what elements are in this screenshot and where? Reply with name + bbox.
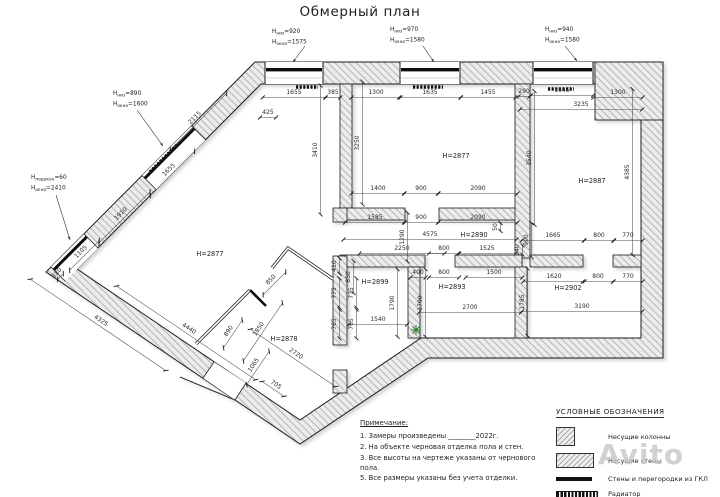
leader-line bbox=[137, 110, 163, 146]
window-label-text: Hокна=1580 bbox=[545, 38, 580, 45]
dimension: 1620 bbox=[521, 273, 586, 284]
note-item: 1. Замеры произведены ________2022г. bbox=[360, 432, 540, 442]
dimension: 770 bbox=[611, 273, 644, 284]
dim-label: 1300 bbox=[610, 89, 625, 96]
note-item: 2. На объекте черновая отделка пола и ст… bbox=[360, 443, 540, 453]
dim-label: 1585 bbox=[367, 214, 382, 221]
dim-label: 1455 bbox=[480, 89, 495, 96]
room-height-label: H=2890 bbox=[460, 231, 487, 239]
room-height-label: H=2899 bbox=[361, 278, 388, 286]
column-swatch-icon bbox=[556, 427, 575, 446]
dimension: 2720 bbox=[248, 321, 342, 389]
dimension: 1065 bbox=[238, 345, 271, 388]
dimension: 1850 bbox=[235, 297, 285, 364]
window-label-text: Hниз=920 bbox=[272, 29, 300, 36]
dim-label: 1645 bbox=[554, 87, 569, 94]
dim-label: 770 bbox=[622, 232, 634, 239]
dimension: 1645 bbox=[529, 87, 595, 98]
avito-watermark: Avito bbox=[598, 438, 684, 471]
leader-line bbox=[293, 46, 305, 62]
legend-heading: УСЛОВНЫЕ ОБОЗНАЧЕНИЯ bbox=[556, 407, 664, 418]
dimension: 1525 bbox=[456, 245, 518, 256]
gkl-swatch-icon bbox=[556, 477, 592, 481]
dimension: 770 bbox=[611, 232, 644, 243]
dim-label: 3250 bbox=[354, 135, 361, 150]
room-height-label: H=2902 bbox=[554, 284, 581, 292]
dimension: 1400 bbox=[350, 185, 407, 196]
dim-label: 410 bbox=[331, 260, 338, 272]
window-label: Hниз=890Hокна=1600 bbox=[113, 91, 163, 146]
dim-label: 800 bbox=[593, 232, 605, 239]
windows-top bbox=[265, 62, 593, 84]
dim-label: 2720 bbox=[288, 347, 305, 361]
dimension: 4575 bbox=[342, 231, 519, 242]
dim-label: 1665 bbox=[545, 232, 560, 239]
dim-label: 4385 bbox=[624, 164, 631, 179]
dimension: 50 bbox=[492, 221, 503, 233]
blueprint-page: Обмерный план bbox=[0, 0, 720, 497]
window-glazing bbox=[266, 68, 592, 71]
room-height-label: H=2878 bbox=[270, 335, 297, 343]
dim-label: 1525 bbox=[479, 245, 494, 252]
room-height-label: H=2893 bbox=[438, 283, 465, 291]
dim-label: 4325 bbox=[93, 314, 110, 328]
dim-label: 900 bbox=[415, 214, 427, 221]
legend-row: Радиатор bbox=[556, 490, 720, 497]
dim-label: 1785 bbox=[519, 294, 526, 309]
note-item: 5. Все размеры указаны без учета отделки… bbox=[360, 474, 540, 484]
dim-label: 1620 bbox=[546, 273, 561, 280]
bearing-column-block bbox=[595, 62, 663, 120]
dim-label: 1400 bbox=[370, 185, 385, 192]
leader-line bbox=[565, 46, 577, 61]
dimension: 1635 bbox=[397, 89, 463, 100]
room-height-label: H=2887 bbox=[578, 177, 605, 185]
room-height-label: H=2877 bbox=[196, 250, 223, 258]
dimension: 2250 bbox=[357, 245, 446, 256]
dimension: 800 bbox=[582, 232, 616, 243]
leader-line bbox=[423, 46, 434, 62]
legend-label: Стены и перегородки из ГКЛ bbox=[608, 475, 708, 483]
window-label: Hподокон=60Hокна=2410 bbox=[31, 175, 70, 240]
dimension: 3410 bbox=[312, 84, 323, 217]
window-label-text: Hниз=970 bbox=[390, 27, 418, 34]
dim-label: 385 bbox=[327, 89, 339, 96]
window-label: Hниз=970Hокна=1580 bbox=[390, 27, 434, 62]
green-cross-marker bbox=[411, 325, 421, 335]
dim-label: 900 bbox=[415, 185, 427, 192]
dim-label: 4440 bbox=[181, 322, 198, 336]
dimension: 3250 bbox=[354, 80, 365, 207]
dim-label: 3190 bbox=[574, 303, 589, 310]
leader-line bbox=[56, 195, 70, 240]
dim-label: 705 bbox=[269, 379, 283, 391]
dimension: 800 bbox=[427, 269, 461, 280]
dimension: 1300 bbox=[349, 89, 402, 100]
dimension: 800 bbox=[581, 273, 615, 284]
dim-label: 1065 bbox=[247, 357, 261, 374]
dim-label: 240 bbox=[514, 244, 521, 256]
dim-label: 3410 bbox=[312, 142, 319, 157]
dim-label: 800 bbox=[438, 269, 450, 276]
window-label-text: Hокна=2410 bbox=[31, 186, 66, 193]
dim-label: 2700 bbox=[462, 304, 477, 311]
dimension: 1455 bbox=[459, 89, 518, 100]
walls-layer bbox=[46, 62, 663, 444]
dim-label: 4575 bbox=[422, 231, 437, 238]
dim-label: 850 bbox=[264, 273, 277, 286]
legend-label: Радиатор bbox=[608, 490, 641, 497]
dim-label: 2090 bbox=[470, 214, 485, 221]
window-label: Hниз=920Hокна=1575 bbox=[272, 29, 307, 62]
dim-label: 850 bbox=[345, 271, 352, 283]
dim-label: 2090 bbox=[470, 185, 485, 192]
dim-label: 3235 bbox=[573, 101, 588, 108]
dim-label: 770 bbox=[622, 273, 634, 280]
dim-label: 400 bbox=[412, 269, 424, 276]
dim-label: 765 bbox=[348, 318, 355, 330]
door-leaf bbox=[250, 290, 266, 306]
notes-block: Примечание: 1. Замеры произведены ______… bbox=[360, 419, 540, 485]
dim-label: 800 bbox=[438, 245, 450, 252]
dim-label: 1300 bbox=[368, 89, 383, 96]
exterior-wall bbox=[46, 62, 663, 444]
dimension: 850 bbox=[256, 265, 289, 298]
dim-label: 425 bbox=[262, 109, 274, 116]
wall-swatch-icon bbox=[556, 453, 594, 468]
dimension: 900 bbox=[402, 185, 440, 196]
dim-label: 1790 bbox=[389, 295, 396, 310]
dim-label: 1635 bbox=[422, 89, 437, 96]
window-label-text: Hокна=1580 bbox=[390, 38, 425, 45]
dimension: 1655 bbox=[261, 89, 328, 100]
dim-label: 3540 bbox=[526, 150, 533, 165]
dimension: 385 bbox=[324, 89, 343, 100]
dimension: 2090 bbox=[436, 185, 519, 196]
dim-label: 890 bbox=[223, 324, 235, 338]
window-label-text: Hокна=1575 bbox=[272, 40, 307, 47]
radiator-swatch-icon bbox=[556, 491, 598, 497]
dimension: 1790 bbox=[389, 267, 400, 339]
window-label-text: Hниз=890 bbox=[113, 91, 141, 98]
dim-label: 1500 bbox=[486, 269, 501, 276]
note-item: 3. Все высоты на чертеже указаны от черн… bbox=[360, 454, 540, 474]
dim-label: 1290 bbox=[399, 229, 406, 244]
dim-label: 765 bbox=[331, 318, 338, 330]
window-label-text: Hокна=1600 bbox=[113, 102, 148, 109]
window-label-text: Hниз=940 bbox=[545, 27, 573, 34]
dim-label: 900 bbox=[523, 234, 530, 246]
dim-label: 800 bbox=[592, 273, 604, 280]
notes-heading: Примечание: bbox=[360, 419, 540, 427]
room-height-label: H=2877 bbox=[442, 152, 469, 160]
legend-row: Стены и перегородки из ГКЛ bbox=[556, 475, 720, 483]
dimension: 2700 bbox=[417, 304, 523, 315]
window-label: Hниз=940Hокна=1580 bbox=[545, 27, 580, 61]
dim-label: 775 bbox=[348, 287, 355, 299]
dim-label: 1655 bbox=[286, 89, 301, 96]
dim-label: 290 bbox=[518, 88, 530, 95]
dim-label: 775 bbox=[331, 287, 338, 299]
dim-label: 50 bbox=[492, 223, 499, 231]
dimension: 3190 bbox=[520, 303, 645, 314]
dim-label: 1540 bbox=[370, 316, 385, 323]
window-label-text: Hподокон=60 bbox=[31, 175, 67, 182]
dim-label: 2250 bbox=[394, 245, 409, 252]
dim-label: 1790 bbox=[417, 295, 424, 310]
dimension: 425 bbox=[258, 109, 278, 120]
dimension: 765 bbox=[348, 308, 359, 341]
